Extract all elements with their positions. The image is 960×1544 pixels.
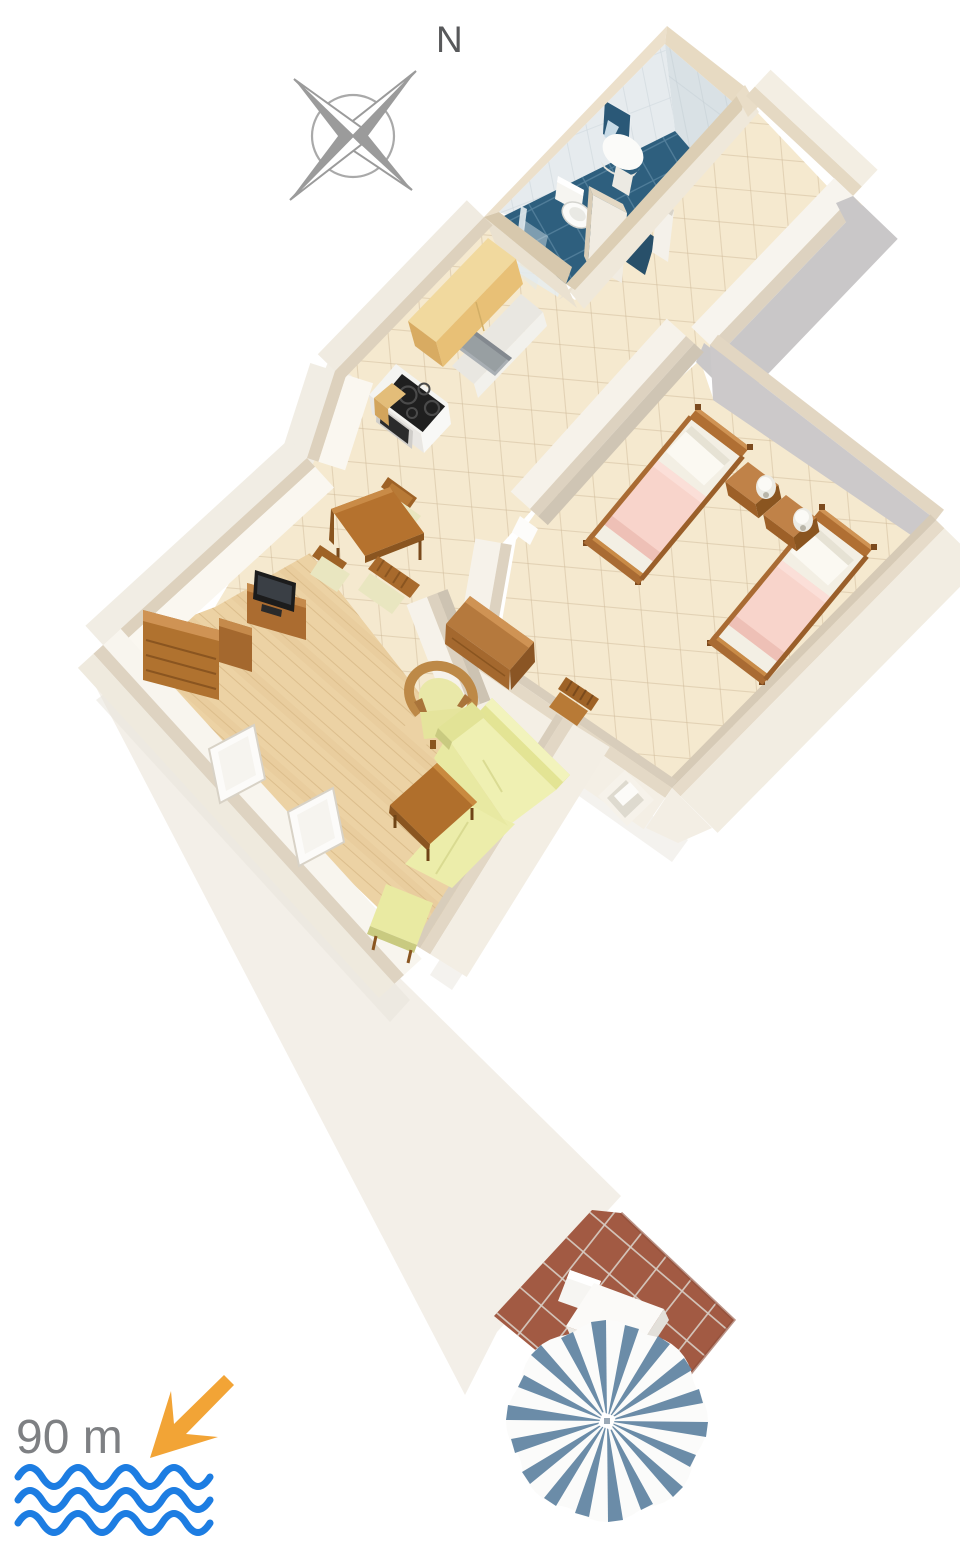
svg-text:N: N [436,19,463,60]
svg-text:90 m: 90 m [16,1411,123,1464]
